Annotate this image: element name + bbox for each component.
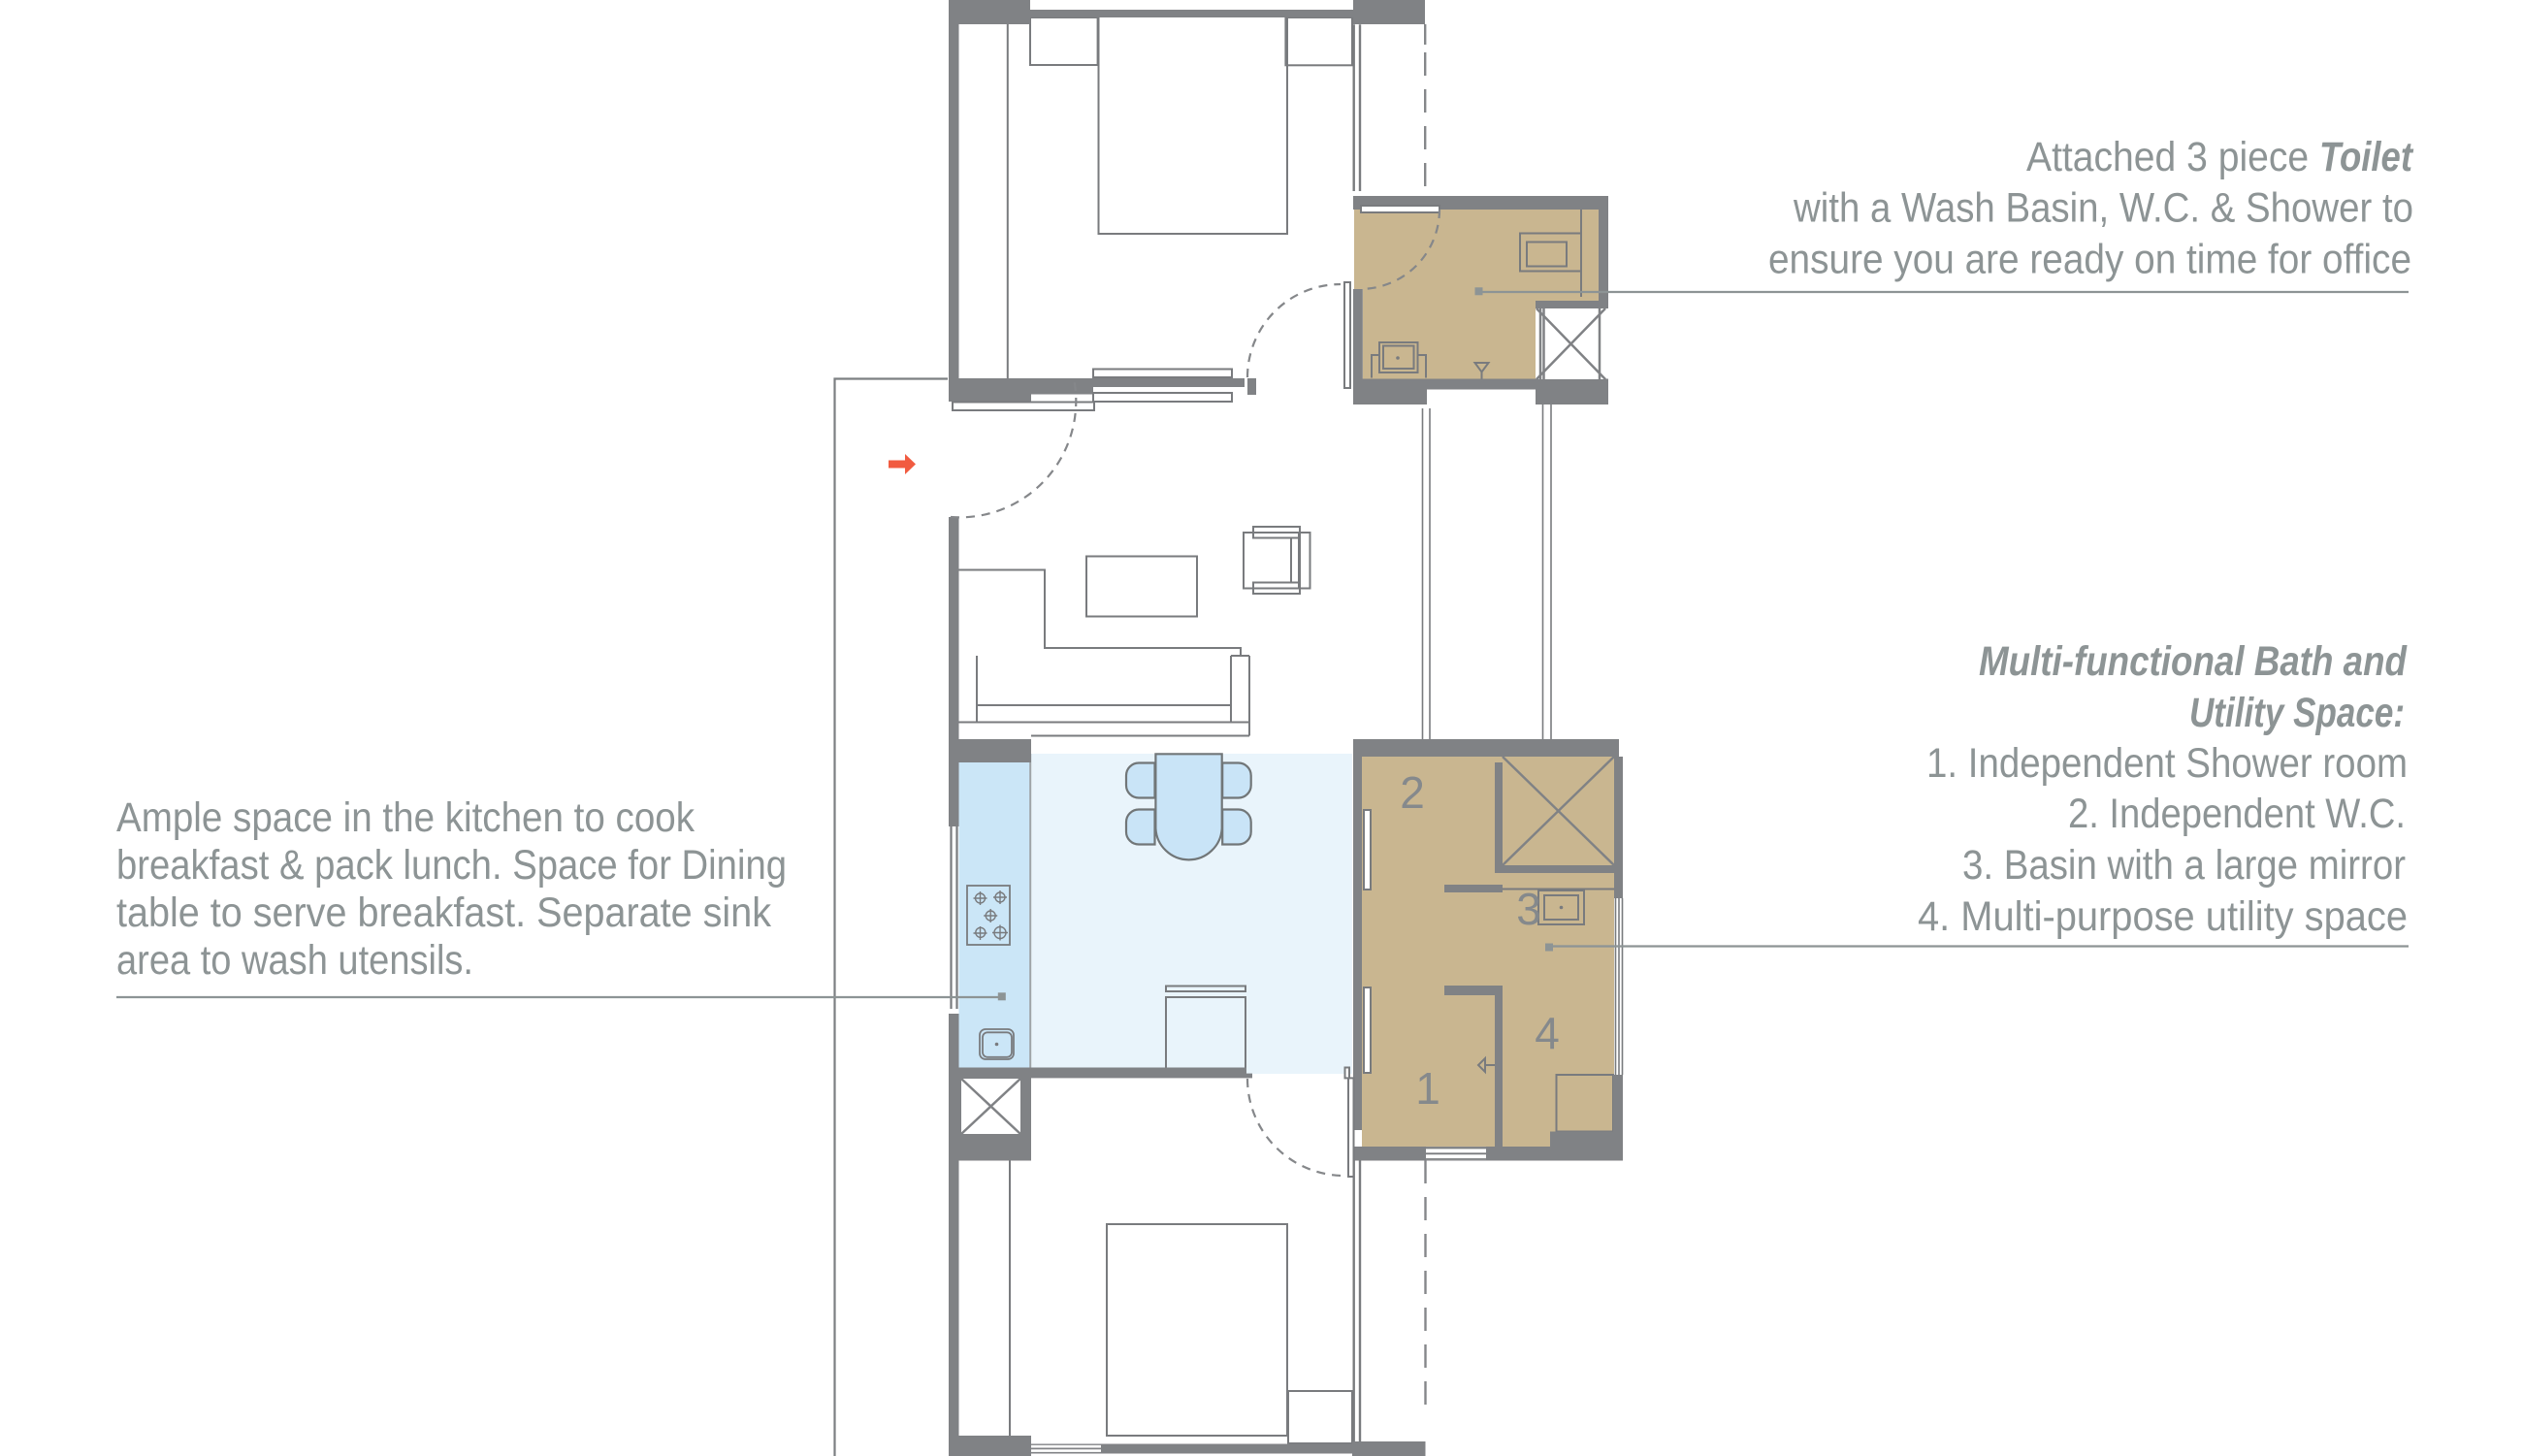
svg-text:2: 2 [1400, 767, 1425, 818]
svg-text:4. Multi-purpose utility space: 4. Multi-purpose utility space [1918, 893, 2408, 940]
svg-text:breakfast & pack lunch. Space: breakfast & pack lunch. Space for Dining [116, 842, 787, 889]
svg-text:3. Basin with a large mirror: 3. Basin with a large mirror [1962, 842, 2406, 889]
svg-text:with a Wash Basin, W.C. & Show: with a Wash Basin, W.C. & Shower to [1793, 185, 2413, 232]
svg-text:ensure you are ready on time f: ensure you are ready on time for office [1768, 237, 2411, 283]
svg-text:area to wash utensils.: area to wash utensils. [116, 937, 473, 984]
svg-text:2. Independent W.C.: 2. Independent W.C. [2068, 791, 2406, 837]
svg-text:Utility Space:: Utility Space: [2189, 690, 2405, 736]
svg-text:3: 3 [1516, 884, 1541, 934]
svg-text:1. Independent Shower room: 1. Independent Shower room [1926, 740, 2408, 787]
svg-text:Attached 3 piece Toilet: Attached 3 piece Toilet [2026, 134, 2413, 180]
svg-text:Ample space in the kitchen to: Ample space in the kitchen to cook [116, 794, 695, 841]
svg-text:4: 4 [1535, 1008, 1560, 1058]
svg-text:1: 1 [1415, 1063, 1440, 1114]
svg-text:table to serve breakfast. Sepa: table to serve breakfast. Separate sink [116, 890, 771, 936]
svg-text:Multi-functional Bath and: Multi-functional Bath and [1979, 638, 2408, 685]
